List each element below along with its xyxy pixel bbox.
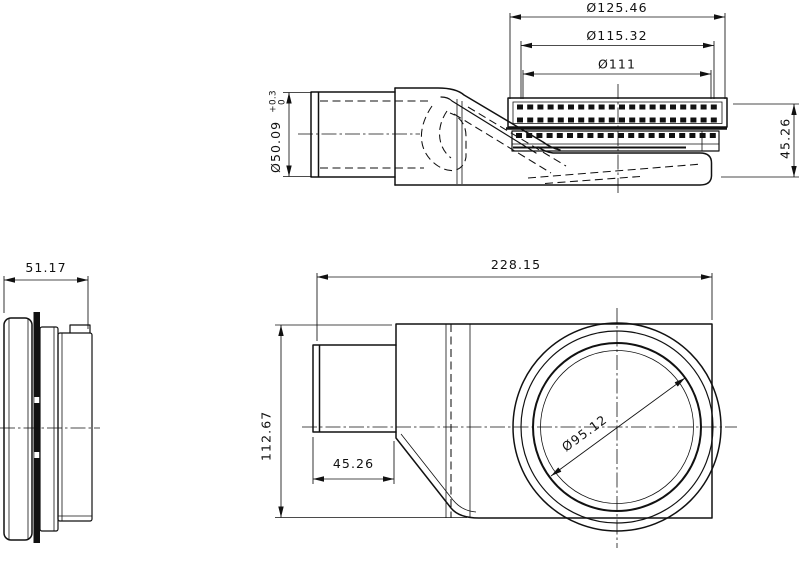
dim-grate-mid-label: Ø115.32 (586, 28, 647, 43)
technical-drawing-page: Ø125.46 Ø115.32 Ø111 Ø50.09 +0.3 0 (0, 0, 800, 563)
grate-edge-bar (34, 312, 41, 543)
dim-overall-width-label: 112.67 (259, 411, 274, 461)
dim-inlet-diameter-label: Ø50.09 +0.3 0 (264, 85, 288, 173)
dim-body-height: 45.26 (721, 104, 799, 177)
side-view: Ø125.46 Ø115.32 Ø111 Ø50.09 +0.3 0 (264, 0, 800, 193)
trap-body-plan (396, 324, 712, 518)
dim-grate-inner-label: Ø111 (598, 57, 636, 72)
drain-trap-drawing: Ø125.46 Ø115.32 Ø111 Ø50.09 +0.3 0 (0, 0, 800, 563)
dim-sump-diameter-label: Ø95.12 (559, 412, 610, 455)
plan-view: 228.15 112.67 45.26 (259, 257, 738, 548)
dim-inlet-diameter: Ø50.09 +0.3 0 (264, 85, 313, 176)
dim-grate-outer: Ø125.46 (510, 0, 725, 99)
inlet-pipe-plan (313, 345, 396, 432)
dim-depth-label: 51.17 (25, 260, 66, 275)
dim-inlet-length-label: 45.26 (333, 456, 374, 471)
trap-body-side (395, 84, 712, 193)
end-view-body (0, 312, 100, 543)
dim-grate-outer-label: Ø125.46 (586, 0, 647, 15)
grate-side (506, 98, 727, 151)
dim-inlet-length: 45.26 (313, 437, 394, 484)
dim-overall-length-label: 228.15 (491, 257, 541, 272)
dim-body-height-label: 45.26 (778, 118, 793, 159)
end-view: 51.17 (0, 260, 100, 543)
inlet-pipe-side (298, 92, 428, 177)
dim-overall-length: 228.15 (317, 257, 712, 341)
dim-grate-inner: Ø111 (523, 57, 711, 100)
